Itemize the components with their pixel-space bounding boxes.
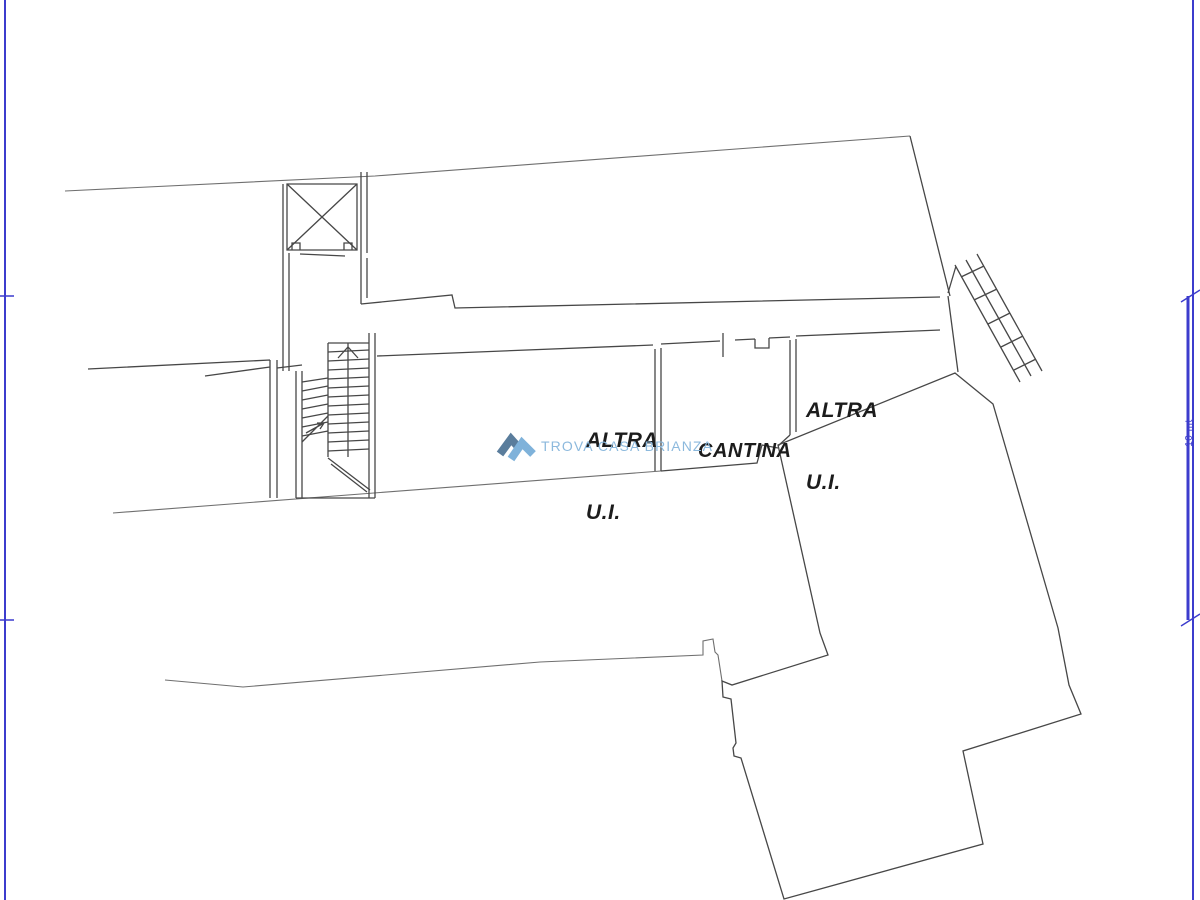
room-label-line: U.I. [806, 471, 878, 495]
room-label-altra-ui-left: ALTRA U.I. [586, 381, 658, 573]
stair-cut-line [328, 458, 370, 492]
room-label-line: ALTRA [806, 399, 878, 423]
watermark: TROVA CASA BRIANZA [494, 430, 724, 466]
site-wall-top [65, 136, 910, 191]
site-wall-bottom [165, 639, 722, 687]
entrance-steps [948, 254, 1042, 382]
elevator-side-walls [283, 172, 367, 371]
watermark-logo-icon [494, 430, 540, 466]
survey-tick-left [0, 296, 14, 620]
wall-rooms-top [377, 345, 653, 356]
room-label-line: U.I. [586, 501, 658, 525]
scale-label: 10 mt [1184, 398, 1198, 468]
watermark-text: TROVA CASA BRIANZA [541, 438, 713, 454]
elevator-shaft [283, 172, 367, 371]
building-walls [88, 136, 1081, 899]
wall-cantina-top [661, 333, 790, 357]
stair-walls [277, 333, 375, 498]
stair-side-arrow [302, 416, 328, 442]
wall-left-rooms [88, 360, 277, 498]
room-label-altra-ui-right: ALTRA U.I. [806, 351, 878, 543]
site-wall-middle [113, 471, 661, 513]
wall-outer-right [910, 136, 958, 372]
staircase [277, 333, 375, 498]
floorplan-page: ALTRA U.I. CANTINA ALTRA U.I. TROVA CASA… [0, 0, 1200, 900]
elevator-x-mark [287, 184, 357, 250]
wall-upper-corridor [361, 295, 940, 308]
wall-altra-right-top [796, 330, 940, 336]
